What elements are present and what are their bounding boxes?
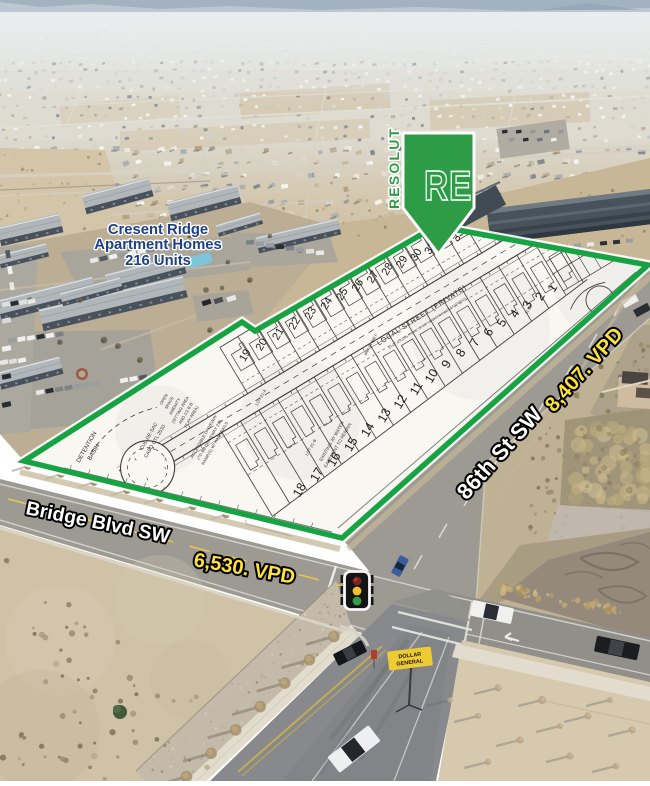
svg-text:RE: RE bbox=[424, 164, 472, 210]
svg-text:216 Units: 216 Units bbox=[125, 253, 191, 269]
svg-text:RESOLUT: RESOLUT bbox=[386, 127, 402, 209]
svg-text:Apartment Homes: Apartment Homes bbox=[94, 237, 221, 253]
svg-text:Cresent Ridge: Cresent Ridge bbox=[108, 222, 208, 238]
